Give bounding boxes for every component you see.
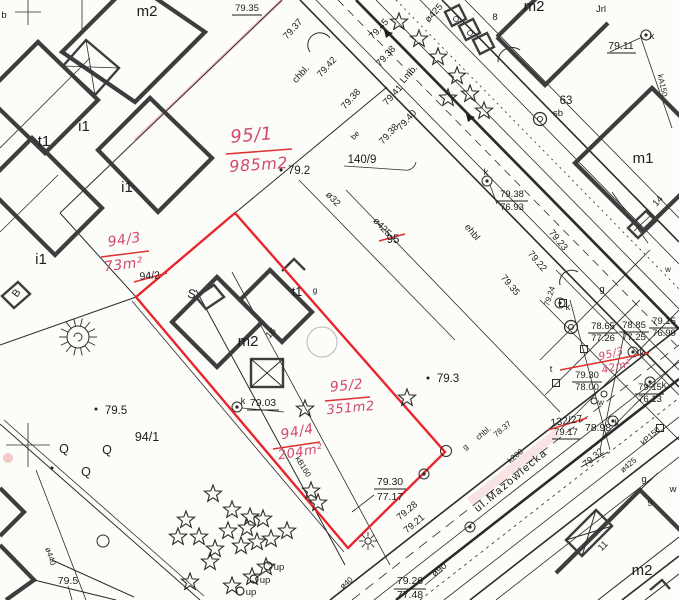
map-label: Lmb. <box>398 63 420 86</box>
tree-star-icon <box>248 533 265 549</box>
tree-star-icon <box>278 522 295 538</box>
map-label: t <box>550 364 553 375</box>
map-label: t1 <box>38 133 51 150</box>
map-label: 79.30 <box>575 370 599 381</box>
map-label: b <box>1 10 6 21</box>
well-icon <box>534 113 547 126</box>
map-label: k <box>650 31 655 42</box>
map-label: m2 <box>524 0 545 15</box>
point-dot <box>427 377 430 380</box>
map-label: 79.35 <box>235 3 259 14</box>
map-label: 76.93 <box>500 202 524 213</box>
bush-icon <box>59 318 97 355</box>
tree-star-icon <box>206 540 223 556</box>
map-label: ehbl <box>462 222 482 243</box>
cadastral-map: m279.35bt1i1i1i1Bm2Jrl79.11kkA15063sbm11… <box>0 0 679 600</box>
map-label: g <box>461 442 470 452</box>
tree-star-icon <box>448 67 465 83</box>
map-label: 78.00 <box>575 382 599 393</box>
map-label: 79.15 <box>652 316 676 327</box>
tree-star-icon <box>232 537 249 553</box>
map-label: k <box>640 348 645 359</box>
map-label: kP150 <box>639 425 662 447</box>
map-label: k <box>566 302 571 313</box>
tree-star-icon <box>219 522 236 538</box>
map-label: 76.13 <box>638 394 662 405</box>
map-label: 79.17 <box>554 427 578 438</box>
point-dot <box>95 408 98 411</box>
map-label: 79.30 <box>377 476 403 488</box>
map-label: 79.03 <box>250 397 276 409</box>
map-label: 79.32 <box>581 446 606 470</box>
map-label: t1 <box>292 285 302 299</box>
tree-star-icon <box>257 558 274 574</box>
map-label: 79.15 <box>638 382 662 393</box>
map-label: 94/2 <box>139 269 160 282</box>
tree-star-icon <box>461 85 478 101</box>
map-label: 79.3 <box>437 373 459 385</box>
map-label: up <box>274 562 285 573</box>
utility-box-icon <box>553 380 560 387</box>
map-label: 79.38 <box>374 44 398 69</box>
map-label: 8 <box>492 12 497 23</box>
map-label: i1 <box>78 118 90 135</box>
map-label: 14 <box>651 194 666 209</box>
map-label: up <box>246 587 257 598</box>
map-label: 63 <box>560 95 573 107</box>
tree-star-icon <box>309 494 326 510</box>
tree-star-icon <box>262 530 279 546</box>
map-label: 78.85 <box>622 320 646 331</box>
map-label: ø90 <box>430 561 450 580</box>
map-label: 79.38 <box>500 189 524 200</box>
map-label: k <box>484 167 489 178</box>
map-label: m2 <box>632 562 653 579</box>
map-label: w <box>669 484 677 495</box>
map-label: 95/2 <box>329 376 364 395</box>
map-label: g <box>599 284 604 295</box>
map-label: 77.25 <box>622 332 646 343</box>
map-label: i1 <box>35 251 47 268</box>
map-label: chbl. <box>290 63 312 85</box>
tree-star-icon <box>429 48 446 64</box>
map-label: m1 <box>633 150 654 167</box>
map-label: m2 <box>238 333 259 350</box>
map-label: g <box>313 286 317 295</box>
tree-star-icon <box>390 13 407 29</box>
map-label: 94/1 <box>135 430 159 444</box>
map-label: Q <box>81 465 91 479</box>
map-label: ø440 <box>43 546 57 567</box>
map-label: 985m2 <box>229 153 289 176</box>
map-label: ø32 <box>323 190 342 209</box>
tree-star-icon <box>177 511 194 527</box>
map-label: 78.37 <box>492 419 514 439</box>
map-label: 79.5 <box>105 405 127 417</box>
map-label: 79.38 <box>339 87 363 112</box>
map-label: w <box>664 265 671 274</box>
map-label: 79.35 <box>498 273 522 298</box>
map-label: 79.2 <box>288 165 310 177</box>
tree-star-icon <box>169 528 186 544</box>
map-label: be <box>349 129 362 142</box>
map-label: 95/1 <box>229 123 273 148</box>
buildings <box>0 0 679 600</box>
tree-star-icon <box>190 528 207 544</box>
map-label: 77.17 <box>377 491 403 503</box>
tree-star-icon <box>254 510 271 526</box>
manhole-icon <box>591 398 597 404</box>
map-label: w <box>597 398 604 407</box>
map-label: ø425 <box>423 2 446 25</box>
map-label: g <box>641 474 646 485</box>
manhole-icon <box>601 391 607 397</box>
map-label: 77.26 <box>591 333 615 344</box>
map-label: 73m² <box>103 255 144 276</box>
map-label: 9 <box>647 498 652 509</box>
map-label: 79.26 <box>397 575 423 587</box>
street-lamp-icon <box>359 532 377 550</box>
map-label: 79.45 <box>367 17 391 42</box>
map-label: m2 <box>137 3 158 20</box>
map-label: 79.5 <box>58 575 79 587</box>
point-dot <box>51 467 54 470</box>
map-label: 140/9 <box>348 154 377 166</box>
map-label: up <box>260 575 271 586</box>
map-label: k <box>241 396 246 407</box>
survey-cross-icon <box>15 0 41 25</box>
tree-star-icon <box>439 89 456 105</box>
map-label: k <box>615 418 620 429</box>
map-label: Jrl <box>596 4 606 15</box>
map-label: 77.48 <box>397 589 423 600</box>
utility-pole-icon <box>419 469 429 479</box>
survey-cross-icon <box>6 423 50 467</box>
map-label: 79.11 <box>608 40 634 52</box>
pencil-ring <box>307 327 337 357</box>
tree-star-icon <box>223 501 240 517</box>
map-label: 76.99 <box>652 328 676 339</box>
map-label: k <box>662 380 667 391</box>
map-label: 78.65 <box>591 321 615 332</box>
map-label: 351m2 <box>326 399 375 418</box>
map-label: 94/3 <box>107 230 143 251</box>
map-label: i1 <box>121 179 133 196</box>
tree-star-icon <box>204 485 221 501</box>
map-label: 94/4 <box>279 421 315 443</box>
map-label: sb <box>553 108 563 119</box>
map-label: 79.23 <box>546 228 570 253</box>
map-label: B <box>10 287 24 300</box>
tree-star-icon <box>238 519 255 535</box>
map-label: ø40 <box>338 575 355 591</box>
map-label: 79.42 <box>315 55 339 80</box>
map-label: 79.37 <box>281 17 305 42</box>
map-label: chbl. <box>474 424 493 442</box>
map-label: Q <box>102 443 112 457</box>
utility-pole-icon <box>465 522 475 532</box>
tree-star-icon <box>223 577 240 593</box>
map-label: Q <box>59 442 69 456</box>
map-label: 78.98 <box>585 422 611 434</box>
map-label: 79.22 <box>525 249 549 274</box>
tree-star-icon <box>181 573 198 589</box>
map-labels: m279.35bt1i1i1i1Bm2Jrl79.11kkA15063sbm11… <box>1 0 676 600</box>
cadastral-map-scan: m279.35bt1i1i1i1Bm2Jrl79.11kkA15063sbm11… <box>0 0 679 600</box>
